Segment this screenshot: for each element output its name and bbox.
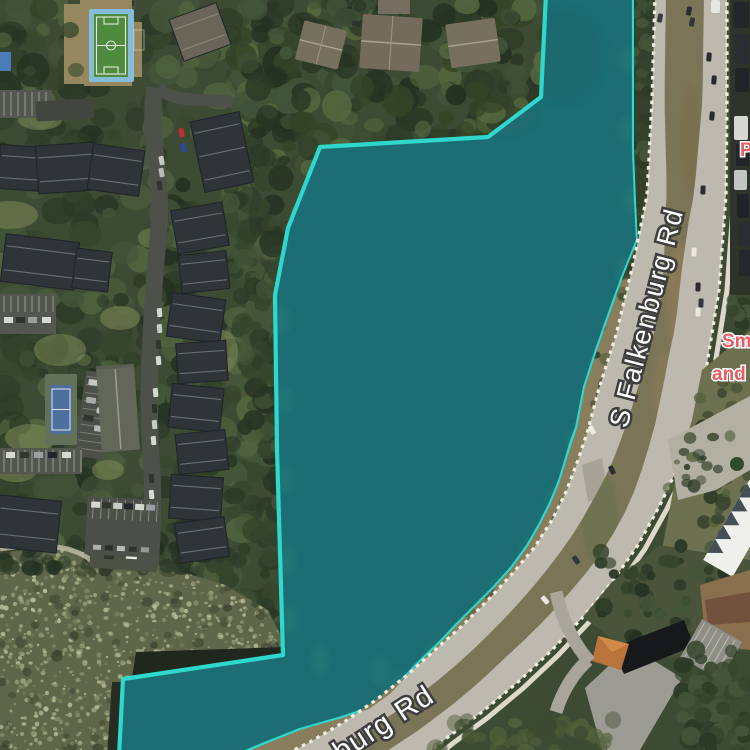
svg-text:and: and xyxy=(712,364,746,385)
svg-text:Smo: Smo xyxy=(722,331,750,352)
svg-text:P: P xyxy=(740,140,750,161)
